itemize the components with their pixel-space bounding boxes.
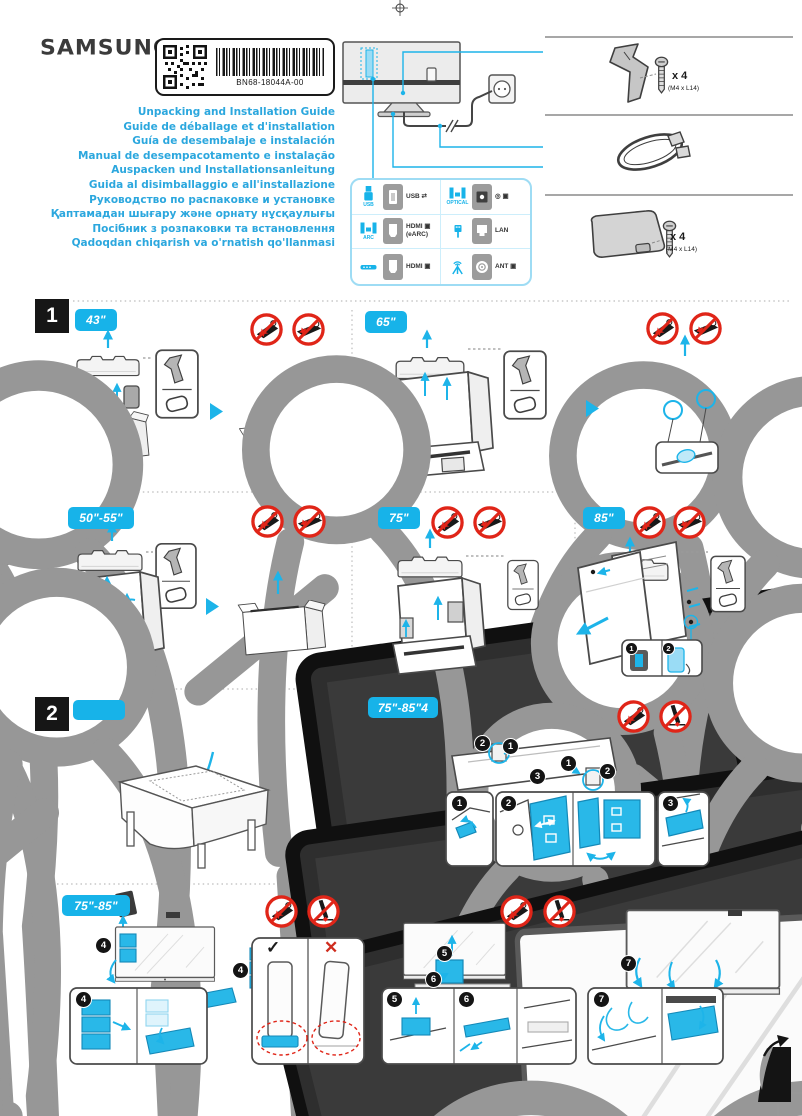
ports-panel: USB USB ⇄ OPTICAL ◎ ▣ ARC HDMI ▣(eARC) L… [350,178,532,286]
product-label: BN68-18044A-00 [155,38,335,96]
title-es: Guía de desembalaje e instalación [35,134,335,149]
ant-port-label: ANT ▣ [495,263,516,271]
no-touch-panel-icon [648,314,677,343]
barcode [216,48,324,76]
no-touch-panel-icon [619,702,648,731]
inset-step-6: 6 [459,992,474,1007]
port-cell-usb: USB USB ⇄ [352,180,441,215]
title-uk: Посібник з розпаковки та встановлення [35,222,335,237]
size-badge-blank [73,700,125,720]
cable-holder-illustration [614,128,690,177]
arc-speakers-icon [360,222,377,235]
title-ru: Руководство по распаковке и установке [35,193,335,208]
no-touch-panel-icon [502,897,531,926]
size-badge-50-55: 50"-55" [68,507,134,529]
port-cell-lan: LAN [441,215,530,250]
port-cell-hdmi-earc: ARC HDMI ▣(eARC) [352,215,441,250]
lan-port [472,218,492,244]
step-dot-1: 1 [561,756,576,771]
title-en: Unpacking and Installation Guide [35,105,335,120]
screw-illustration [655,57,667,93]
step-dot-4: 4 [96,938,111,953]
soundbar-icon [360,261,377,273]
antenna-icon [450,259,465,275]
hdmi-port [383,254,403,280]
hdmi-earc-port [383,218,403,244]
no-grip-panel-icon [475,508,504,537]
inset-step-3: 3 [663,796,678,811]
size-badge-85: 85" [583,507,625,529]
qr-code [163,45,207,89]
port-cell-ant: ANT ▣ [441,249,530,284]
size-badge-75-85-top: 75"-85"4 [368,697,438,718]
title-uz: Qadoqdan chiqarish va o'rnatish qo'llanm… [35,236,335,251]
optical-device-label: OPTICAL [447,200,469,206]
no-touch-panel-icon [253,507,282,536]
hdmi-earc-port-label: HDMI ▣(eARC) [406,223,431,239]
no-touch-panel-icon [635,508,664,537]
no-grip-panel-icon [295,507,324,536]
base-screws-qty: x 4 [670,231,685,243]
accessory-list [545,37,793,257]
no-stand-on-edge-icon [545,897,574,926]
optical-port-label: ◎ ▣ [495,193,509,201]
ant-port [472,254,492,280]
title-it: Guida al disimballaggio e all'installazi… [35,178,335,193]
no-grip-panel-icon [675,508,704,537]
lock-step-2: 2 [663,643,674,654]
ethernet-cable-icon [451,223,465,240]
stand-screws-qty: x 4 [672,70,687,82]
no-stand-on-edge-icon [309,897,338,926]
size-badge-75-85-bottom: 75"-85" [62,895,130,916]
step-dot-6: 6 [426,972,441,987]
step-dot-2: 2 [475,736,490,751]
guide-page: SAMSUNG BN68-18044A-00 Unpacking and Ins… [0,0,802,1116]
stand-neck-illustration [610,44,656,102]
section-2-badge: 2 [35,697,69,731]
step-dot-4: 4 [233,963,248,978]
part-number: BN68-18044A-00 [236,78,303,87]
base-screws-spec: (M4 x L14) [666,246,697,253]
no-touch-panel-icon [252,315,281,344]
inset-step-5: 5 [387,992,402,1007]
inset-step-7: 7 [594,992,609,1007]
section-1-badge: 1 [35,299,69,333]
step-dot-7: 7 [621,956,636,971]
usb-device-label: USB [363,202,374,208]
stand-screws-spec: (M4 x L14) [668,85,699,92]
usb-port [383,184,403,210]
lan-port-label: LAN [495,227,508,235]
hdmi-port-label: HDMI ▣ [406,263,431,271]
title-fr: Guide de déballage et d'installation [35,120,335,135]
step-dot-5: 5 [437,946,452,961]
no-grip-panel-icon [294,315,323,344]
title-pt: Manual de desempacotamento e instalação [35,149,335,164]
port-cell-optical: OPTICAL ◎ ▣ [441,180,530,215]
tv-back-diagram [343,42,515,133]
title-de: Auspacken und Installationsanleitung [35,163,335,178]
wrong-cross-mark: ✕ [324,938,338,958]
inset-step-2: 2 [501,796,516,811]
step-dot-3: 3 [530,769,545,784]
no-grip-panel-icon [691,314,720,343]
correct-check-mark: ✓ [266,938,280,958]
lock-step-1: 1 [626,643,637,654]
step-dot-2: 2 [600,764,615,779]
no-touch-panel-icon [267,897,296,926]
samsung-logo: SAMSUNG [40,37,172,61]
inset-step-4: 4 [76,992,91,1007]
step-dot-1: 1 [503,739,518,754]
usb-port-label: USB ⇄ [406,193,427,201]
inset-step-1: 1 [452,796,467,811]
no-touch-panel-icon [433,508,462,537]
optical-speakers-icon [449,187,466,200]
optical-port [472,184,492,210]
size-badge-65: 65" [365,311,407,333]
arc-device-label: ARC [363,235,374,241]
port-cell-hdmi: HDMI ▣ [352,249,441,284]
stand-base-illustration [592,211,665,257]
size-badge-75: 75" [378,507,420,529]
size-badge-43: 43" [75,309,117,331]
title-kk: Қаптамадан шығару және орнату нұсқаулығы [35,207,335,222]
title-block: Unpacking and Installation Guide Guide d… [35,105,335,251]
usb-device-icon [361,185,376,202]
no-stand-on-edge-icon [661,702,690,731]
